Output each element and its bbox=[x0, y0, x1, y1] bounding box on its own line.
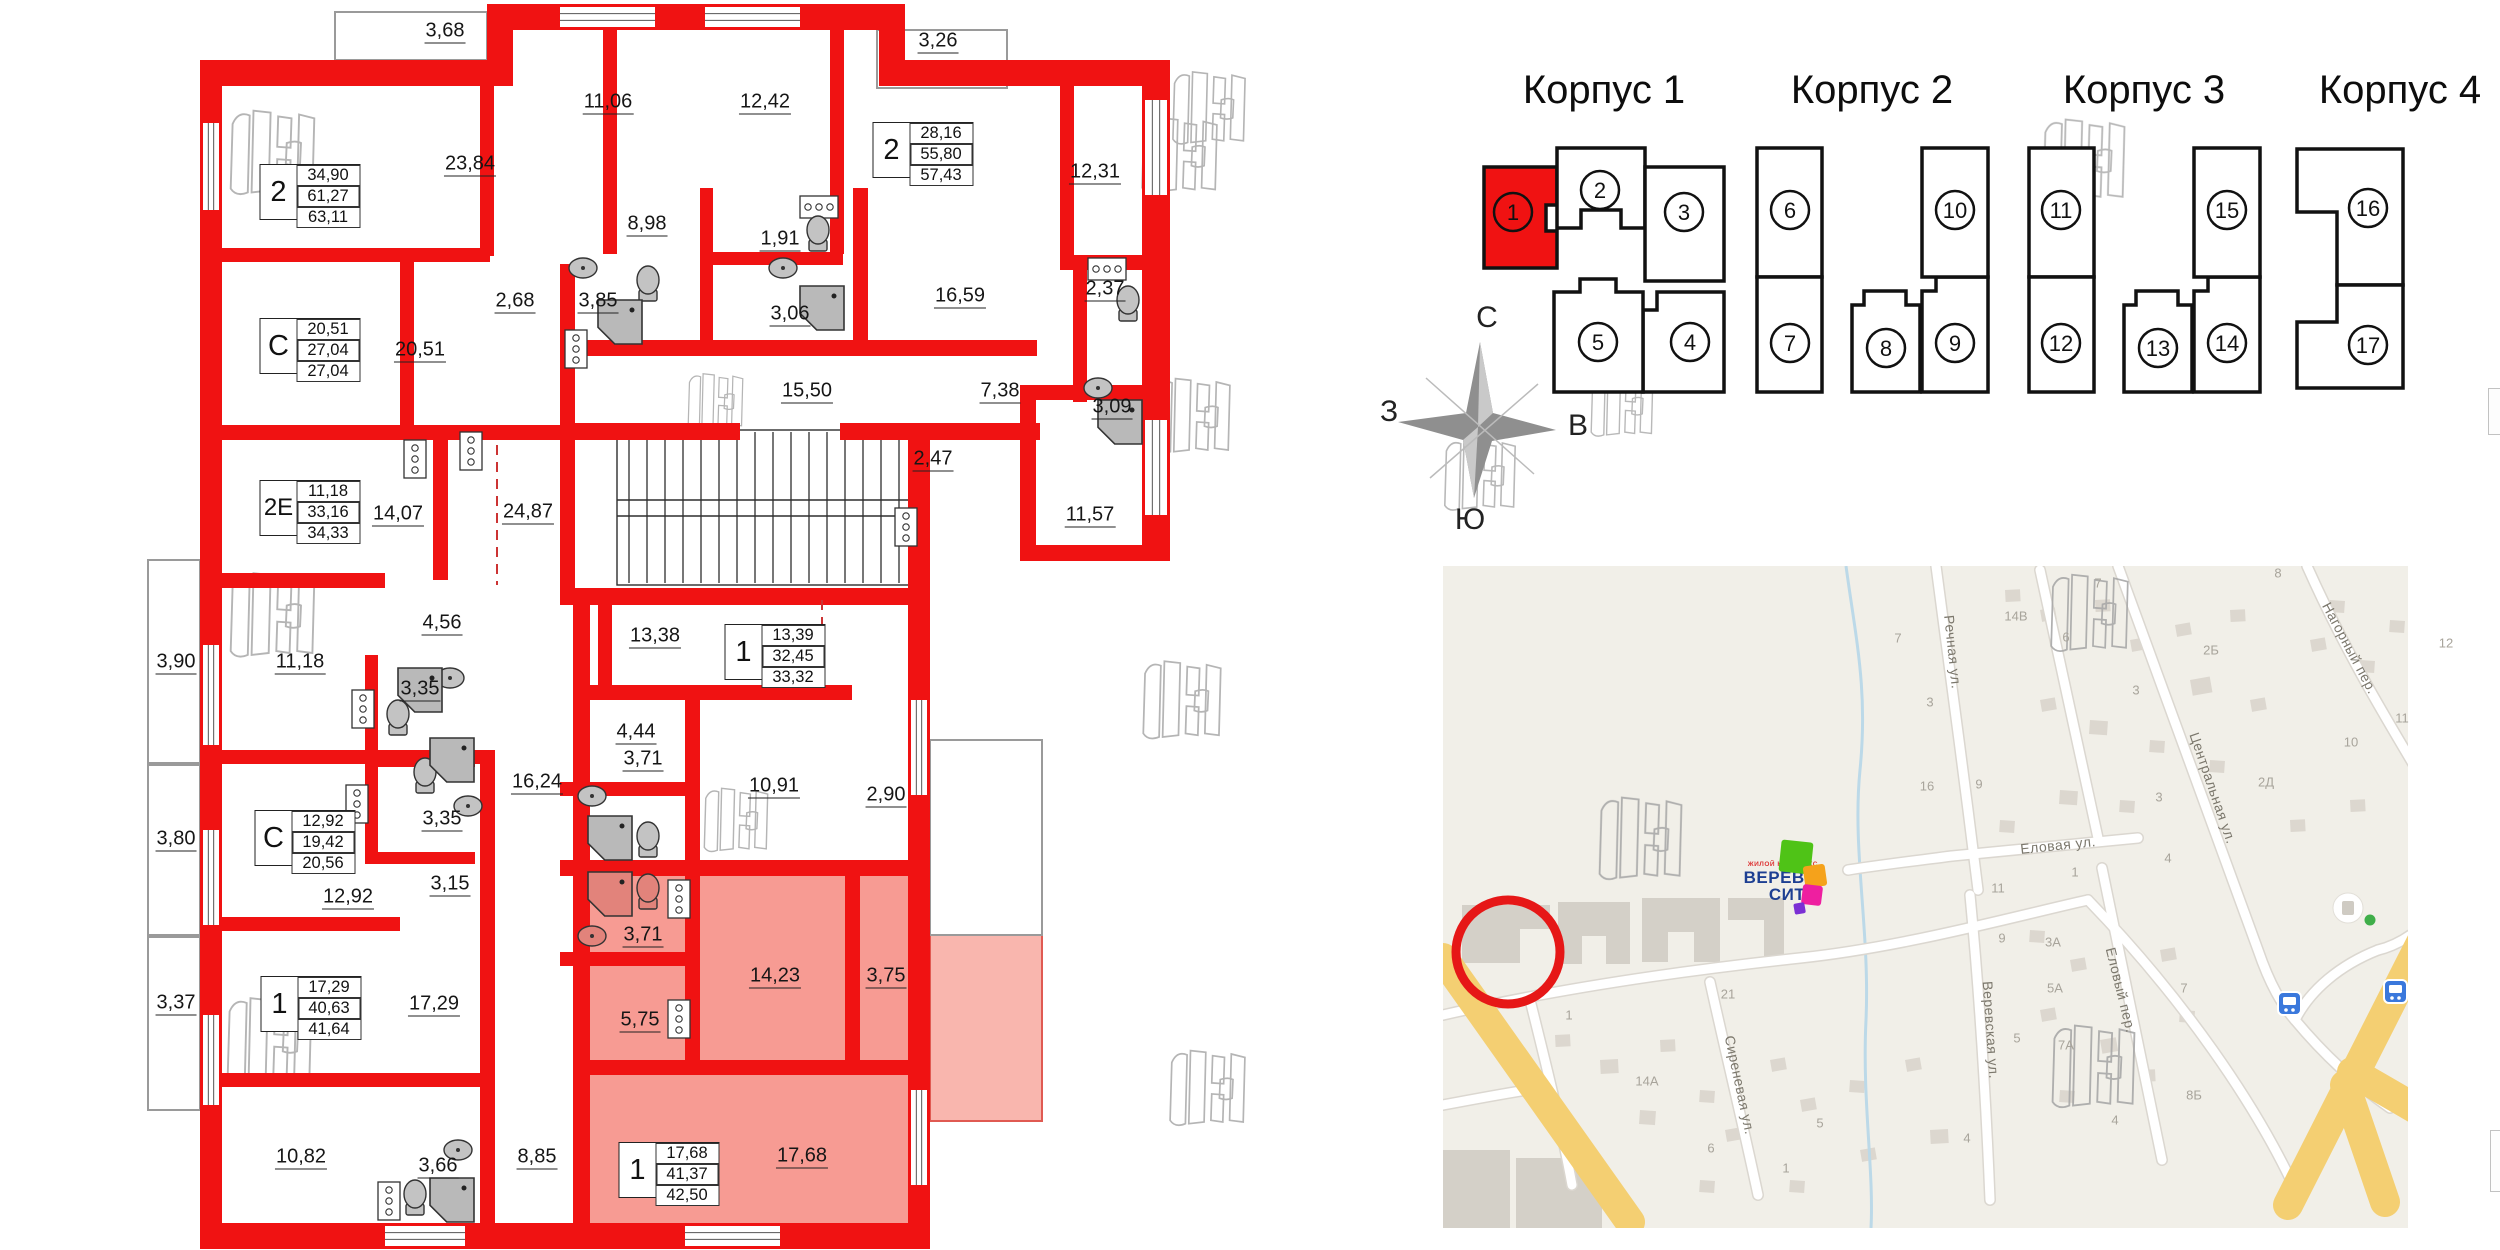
section-number: 17 bbox=[2356, 333, 2380, 358]
compass-south-label: Ю bbox=[1455, 503, 1485, 537]
house-number: 7 bbox=[1894, 631, 1901, 646]
house-number: 11 bbox=[1991, 881, 2005, 896]
room-area-label: 17,29 bbox=[408, 994, 460, 1017]
apartment-area-value: 41,37 bbox=[655, 1163, 719, 1186]
room-area-label: 3,37 bbox=[156, 993, 197, 1016]
apartment-stat-box[interactable]: 117,2940,6341,64 bbox=[261, 976, 362, 1032]
section-number: 10 bbox=[1943, 198, 1967, 223]
house-number: 21 bbox=[1721, 987, 1735, 1002]
section-number: 14 bbox=[2215, 331, 2239, 356]
section-number: 12 bbox=[2049, 331, 2073, 356]
korpus-title: Корпус 3 bbox=[2063, 68, 2225, 113]
apartment-area-value: 19,42 bbox=[291, 831, 355, 854]
apartment-stat-box[interactable]: С12,9219,4220,56 bbox=[255, 810, 356, 866]
room-area-label: 3,75 bbox=[866, 966, 907, 989]
korpus-title: Корпус 2 bbox=[1791, 68, 1953, 113]
apartment-area-value: 41,64 bbox=[297, 1019, 361, 1040]
apartment-type: 1 bbox=[262, 977, 298, 1031]
room-area-label: 14,23 bbox=[749, 966, 801, 989]
room-area-label: 13,38 bbox=[629, 626, 681, 649]
section-number: 5 bbox=[1592, 330, 1604, 355]
section-number: 13 bbox=[2146, 336, 2170, 361]
compass-rose bbox=[1398, 342, 1556, 498]
bus-stop-icon bbox=[2384, 980, 2407, 1003]
room-area-label: 2,90 bbox=[866, 785, 907, 808]
room-area-label: 3,71 bbox=[623, 749, 664, 772]
house-number: 4 bbox=[1963, 1131, 1970, 1146]
section-number: 8 bbox=[1880, 336, 1892, 361]
room-area-label: 3,35 bbox=[400, 679, 441, 702]
apartment-type: С bbox=[256, 811, 292, 865]
room-area-label: 3,80 bbox=[156, 829, 197, 852]
apartment-type: 1 bbox=[726, 625, 762, 679]
house-number: 3 bbox=[2155, 790, 2162, 805]
house-number: 9 bbox=[1998, 931, 2005, 946]
room-area-label: 4,44 bbox=[616, 722, 657, 745]
edge-control[interactable] bbox=[2490, 1130, 2500, 1192]
room-area-label: 16,24 bbox=[511, 772, 563, 795]
house-number: 8Б bbox=[2186, 1088, 2202, 1103]
section-number: 2 bbox=[1594, 178, 1606, 203]
house-number: 7 bbox=[2094, 576, 2101, 591]
section-number: 11 bbox=[2050, 198, 2073, 223]
section-number: 1 bbox=[1507, 200, 1519, 225]
section-number: 7 bbox=[1784, 331, 1796, 356]
house-number: 14В bbox=[2004, 609, 2027, 624]
house-number: 3 bbox=[2132, 683, 2139, 698]
house-number: 6 bbox=[1707, 1141, 1714, 1156]
section-number: 6 bbox=[1784, 198, 1796, 223]
house-number: 10 bbox=[2344, 735, 2358, 750]
house-number: 5А bbox=[2047, 981, 2063, 996]
room-area-label: 8,85 bbox=[517, 1147, 558, 1170]
house-number: 1 bbox=[2071, 865, 2078, 880]
house-number: 14А bbox=[1635, 1074, 1658, 1089]
apartment-area-value: 13,39 bbox=[761, 625, 825, 646]
house-number: 16 bbox=[1920, 779, 1934, 794]
room-area-label: 3,90 bbox=[156, 652, 197, 675]
room-area-label: 5,75 bbox=[620, 1010, 661, 1033]
room-area-label: 4,56 bbox=[422, 613, 463, 636]
compass-west-label: З bbox=[1380, 395, 1398, 429]
house-number: 12 bbox=[2439, 636, 2453, 651]
house-number: 6 bbox=[2062, 630, 2069, 645]
korpus-title: Корпус 1 bbox=[1523, 68, 1685, 113]
room-area-label: 11,18 bbox=[275, 652, 326, 675]
room-area-label: 12,92 bbox=[322, 887, 374, 910]
apartment-area-value: 17,68 bbox=[655, 1143, 719, 1164]
bus-stop-icon bbox=[2278, 992, 2301, 1015]
house-number: 3 bbox=[1926, 695, 1933, 710]
edge-control[interactable] bbox=[2488, 388, 2500, 435]
room-area-label: 3,15 bbox=[430, 874, 471, 897]
korpus-title: Корпус 4 bbox=[2319, 68, 2481, 113]
house-number: 2Д bbox=[2258, 775, 2274, 790]
location-map bbox=[1443, 566, 2408, 1228]
house-number: 7А bbox=[2058, 1038, 2074, 1053]
house-number: 4 bbox=[2164, 851, 2171, 866]
house-number: 8 bbox=[2274, 566, 2281, 581]
apartment-area-value: 32,45 bbox=[761, 645, 825, 668]
house-number: 3А bbox=[2045, 935, 2061, 950]
section-number: 3 bbox=[1678, 200, 1690, 225]
apartment-stat-box[interactable]: 113,3932,4533,32 bbox=[725, 624, 826, 680]
apartment-area-value: 12,92 bbox=[291, 811, 355, 832]
section-number: 15 bbox=[2215, 198, 2239, 223]
room-area-label: 3,66 bbox=[418, 1156, 459, 1179]
house-number: 11 bbox=[2395, 711, 2409, 726]
house-number: 1 bbox=[1782, 1161, 1789, 1176]
room-area-label: 3,71 bbox=[623, 925, 664, 948]
house-number: 9 bbox=[1975, 777, 1982, 792]
apartment-area-value: 42,50 bbox=[655, 1185, 719, 1206]
apartment-type: 1 bbox=[620, 1143, 656, 1197]
house-number: 4 bbox=[2111, 1113, 2118, 1128]
room-area-label: 17,68 bbox=[776, 1146, 828, 1169]
room-area-label: 10,82 bbox=[275, 1147, 327, 1170]
compass-north-label: С bbox=[1476, 301, 1498, 335]
poi-green-dot bbox=[2365, 915, 2376, 926]
compass-east-label: В bbox=[1568, 409, 1588, 443]
apartment-area-value: 20,56 bbox=[291, 853, 355, 874]
section-number: 16 bbox=[2356, 196, 2380, 221]
room-area-label: 3,35 bbox=[422, 809, 463, 832]
apartment-area-value: 17,29 bbox=[297, 977, 361, 998]
section-number: 9 bbox=[1949, 331, 1961, 356]
house-number: 7 bbox=[2180, 981, 2187, 996]
section-number: 4 bbox=[1684, 330, 1696, 355]
house-number: 1 bbox=[1565, 1008, 1572, 1023]
apartment-area-value: 33,32 bbox=[761, 667, 825, 688]
logo-cubes-icon bbox=[1776, 835, 1836, 915]
house-number: 5 bbox=[2013, 1031, 2020, 1046]
apartment-plan-page: 3,6823,8411,0612,423,2612,318,981,9116,5… bbox=[0, 0, 2500, 1250]
house-number: 2Б bbox=[2203, 643, 2219, 658]
room-area-label: 10,91 bbox=[748, 776, 800, 799]
apartment-area-value: 40,63 bbox=[297, 997, 361, 1020]
apartment-stat-box[interactable]: 117,6841,3742,50 bbox=[619, 1142, 720, 1198]
house-number: 5 bbox=[1816, 1116, 1823, 1131]
